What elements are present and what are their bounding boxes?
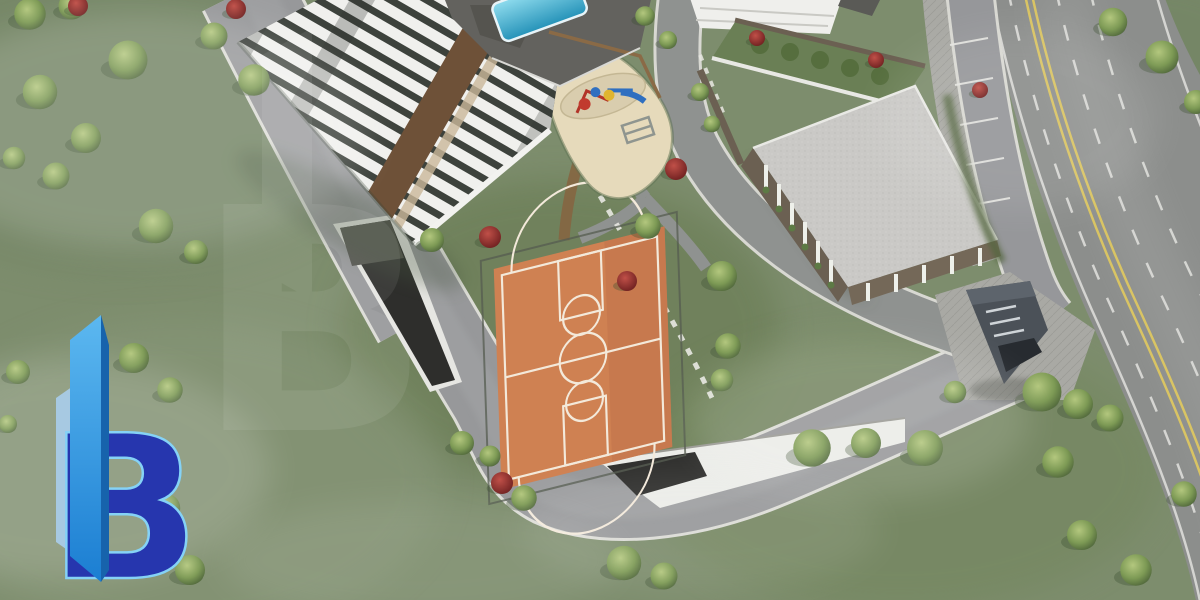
logo-tower (70, 315, 101, 582)
watermark-letter: B (195, 143, 431, 504)
aerial-render: B B (0, 0, 1200, 600)
scene-canvas: B B (0, 0, 1200, 600)
watermark-tower (262, 28, 312, 300)
logo-tower-edge (101, 315, 109, 582)
